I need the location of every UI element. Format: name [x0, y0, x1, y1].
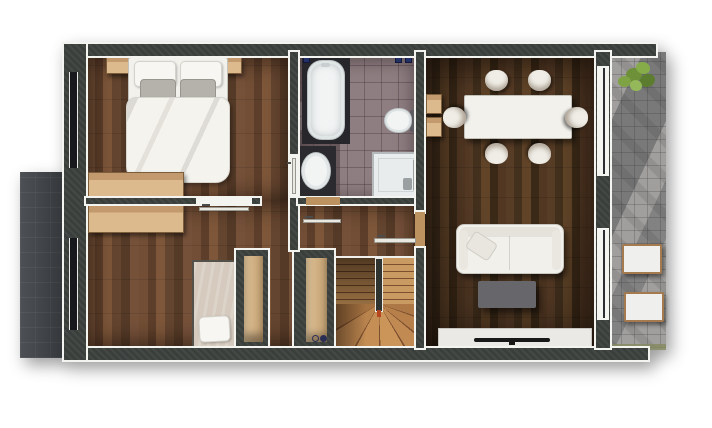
wall-dining-west-lower [414, 246, 426, 350]
bathtub [307, 60, 345, 140]
wall-dining-west-upper [414, 50, 426, 214]
double-bed [128, 57, 228, 179]
door-opening-bathroom [306, 197, 340, 205]
stair-spine-wall [375, 258, 383, 312]
wardrobe-bedroom-2 [88, 204, 184, 233]
door-handle [287, 162, 291, 164]
door-leaf-living [374, 238, 416, 243]
dining-table [464, 95, 572, 139]
dining-chair [528, 70, 551, 91]
tv-foot [509, 342, 515, 345]
washbasin [301, 152, 331, 190]
wall-shelf [426, 94, 442, 114]
duvet [126, 97, 230, 183]
patio-seat [624, 292, 664, 322]
shower [372, 152, 420, 198]
dining-chair [565, 107, 588, 128]
dining-chair [485, 70, 508, 91]
shower-drain [403, 178, 412, 190]
sofa-arm [552, 230, 561, 270]
stair-newel-mark [377, 310, 381, 317]
door-handle [377, 235, 385, 237]
dining-chair [443, 107, 466, 128]
patio-seat [622, 244, 662, 274]
door-handle [305, 216, 313, 218]
door-leaf-bedroom-2 [199, 207, 249, 211]
door-handle [202, 204, 210, 206]
window-dining [597, 66, 609, 176]
power-outlet-icon [312, 335, 328, 343]
coffee-table [478, 281, 536, 308]
doorway-dining [415, 210, 425, 248]
door-leaf-bathroom [303, 219, 341, 223]
wall-bathroom-west [288, 50, 300, 156]
wardrobe-bedroom-1 [88, 172, 184, 199]
wall-south [62, 346, 650, 362]
dining-chair [485, 143, 508, 164]
wall-bedroom-divider [84, 196, 198, 206]
window-living [597, 228, 609, 320]
sofa [456, 224, 564, 274]
plan-rendering [0, 0, 712, 428]
window-bedroom-2 [69, 238, 78, 330]
plant [616, 60, 658, 100]
door-leaf-bedroom-1 [292, 158, 296, 194]
staircase [336, 256, 422, 346]
wall-north [62, 42, 658, 58]
window-bedroom-1 [69, 72, 78, 168]
closet-bedroom-2 [234, 248, 270, 350]
floor-plan [0, 0, 712, 428]
wall-jamb [250, 196, 262, 206]
single-bed [192, 260, 236, 348]
bathtub-faucet [321, 63, 330, 67]
dining-chair [528, 143, 551, 164]
wall-shelf [426, 117, 442, 137]
sofa-arm [459, 230, 468, 270]
